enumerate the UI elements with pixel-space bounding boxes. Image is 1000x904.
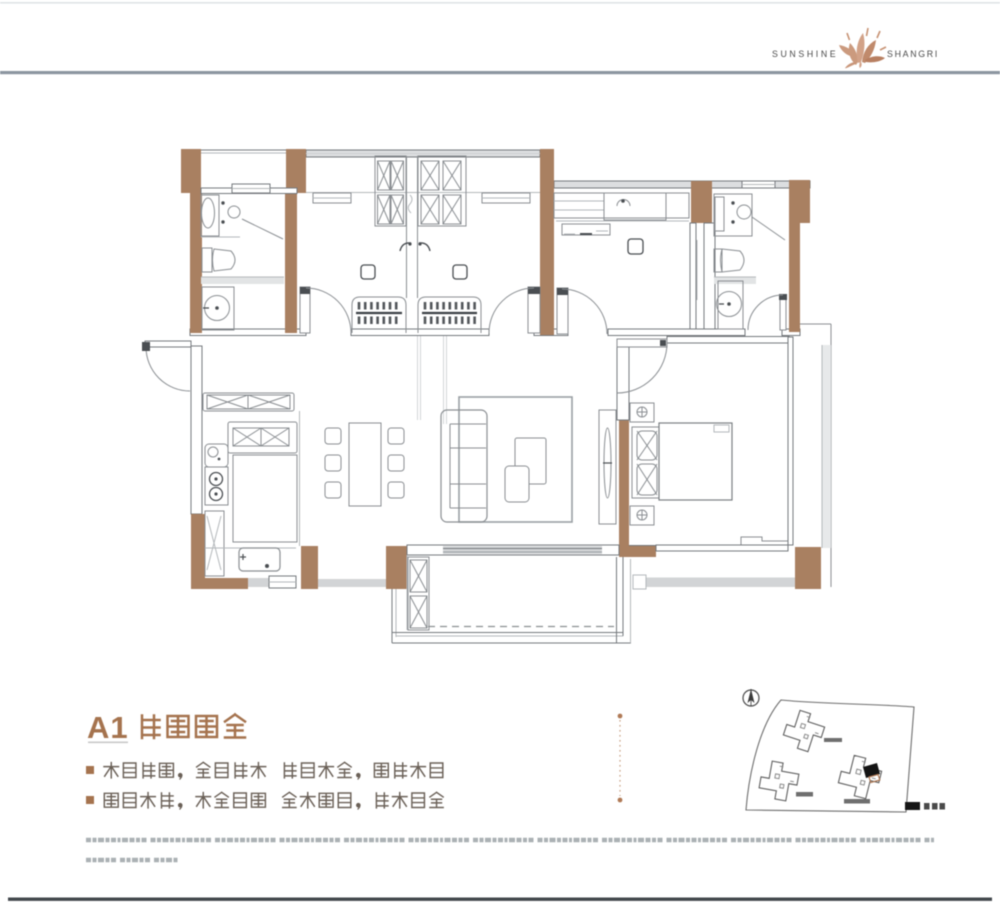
svg-text:A1: A1 [87, 710, 129, 745]
svg-text:SUNSHINE: SUNSHINE [772, 49, 838, 59]
svg-text:SHANGRI: SHANGRI [887, 49, 939, 59]
